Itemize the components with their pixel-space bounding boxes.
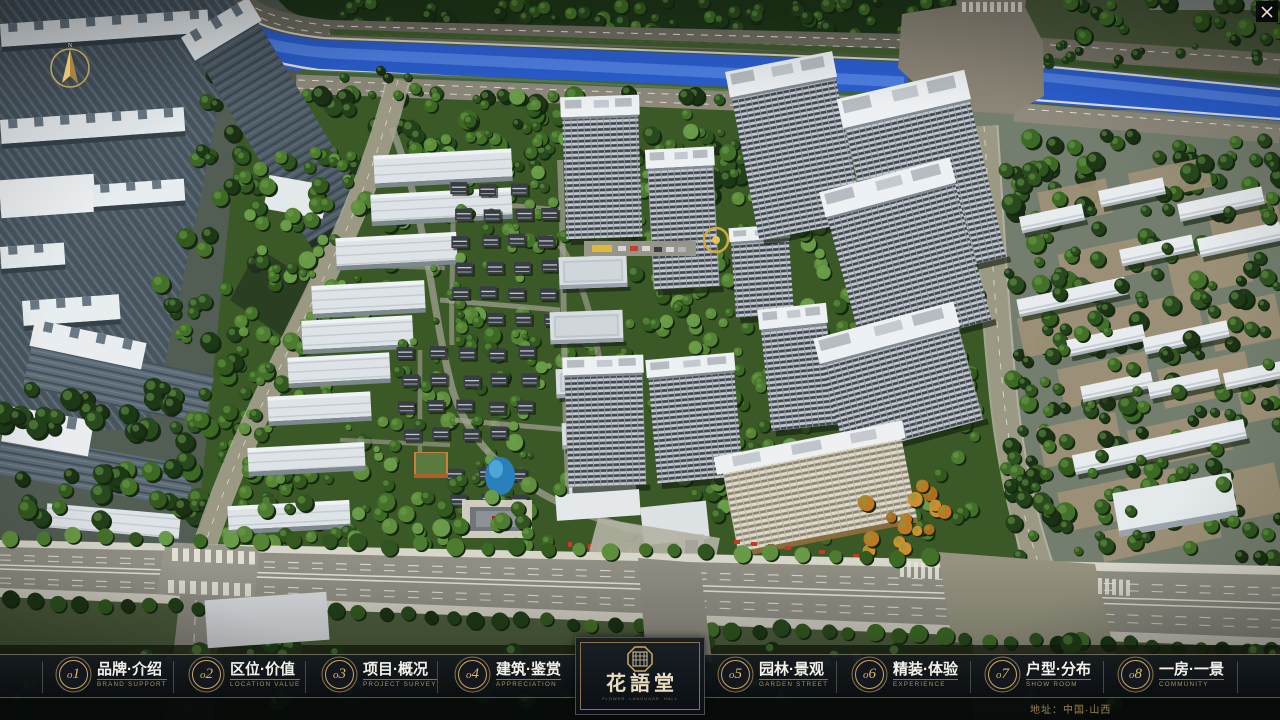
svg-text:N: N	[68, 43, 73, 49]
